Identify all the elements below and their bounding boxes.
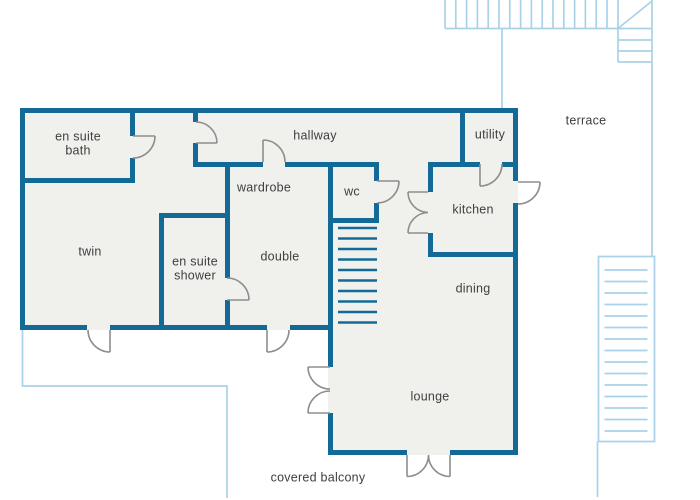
floor-plan-page: en suite bath hallway utility terrace wa…: [0, 0, 700, 500]
room-label-en-suite-bath: en suite bath: [55, 131, 101, 158]
door-lounge-balcony-double: [308, 367, 330, 413]
terrace-decking: [445, 0, 618, 29]
room-label-wc: wc: [344, 185, 360, 199]
room-label-terrace: terrace: [566, 114, 607, 128]
door-double-balcony: [267, 330, 289, 352]
room-label-dining: dining: [456, 282, 491, 296]
door-lounge-french: [407, 455, 450, 477]
terrace-outline: [502, 29, 652, 256]
balcony-outline: [23, 330, 228, 498]
room-label-covered-balcony: covered balcony: [271, 471, 366, 485]
room-label-lounge: lounge: [410, 390, 449, 404]
room-label-double: double: [260, 250, 299, 264]
room-label-kitchen: kitchen: [452, 203, 493, 217]
door-kitchen-terrace: [518, 182, 540, 204]
room-label-en-suite-shower: en suite shower: [172, 256, 218, 283]
room-label-utility: utility: [475, 128, 505, 142]
room-label-hallway: hallway: [293, 129, 336, 143]
room-label-wardrobe: wardrobe: [237, 181, 291, 195]
room-label-twin: twin: [78, 245, 101, 259]
door-twin-balcony: [88, 330, 110, 352]
side-stairs: [598, 257, 655, 498]
terrace-steps: [618, 0, 652, 62]
floor-plan-drawing: [0, 0, 700, 500]
